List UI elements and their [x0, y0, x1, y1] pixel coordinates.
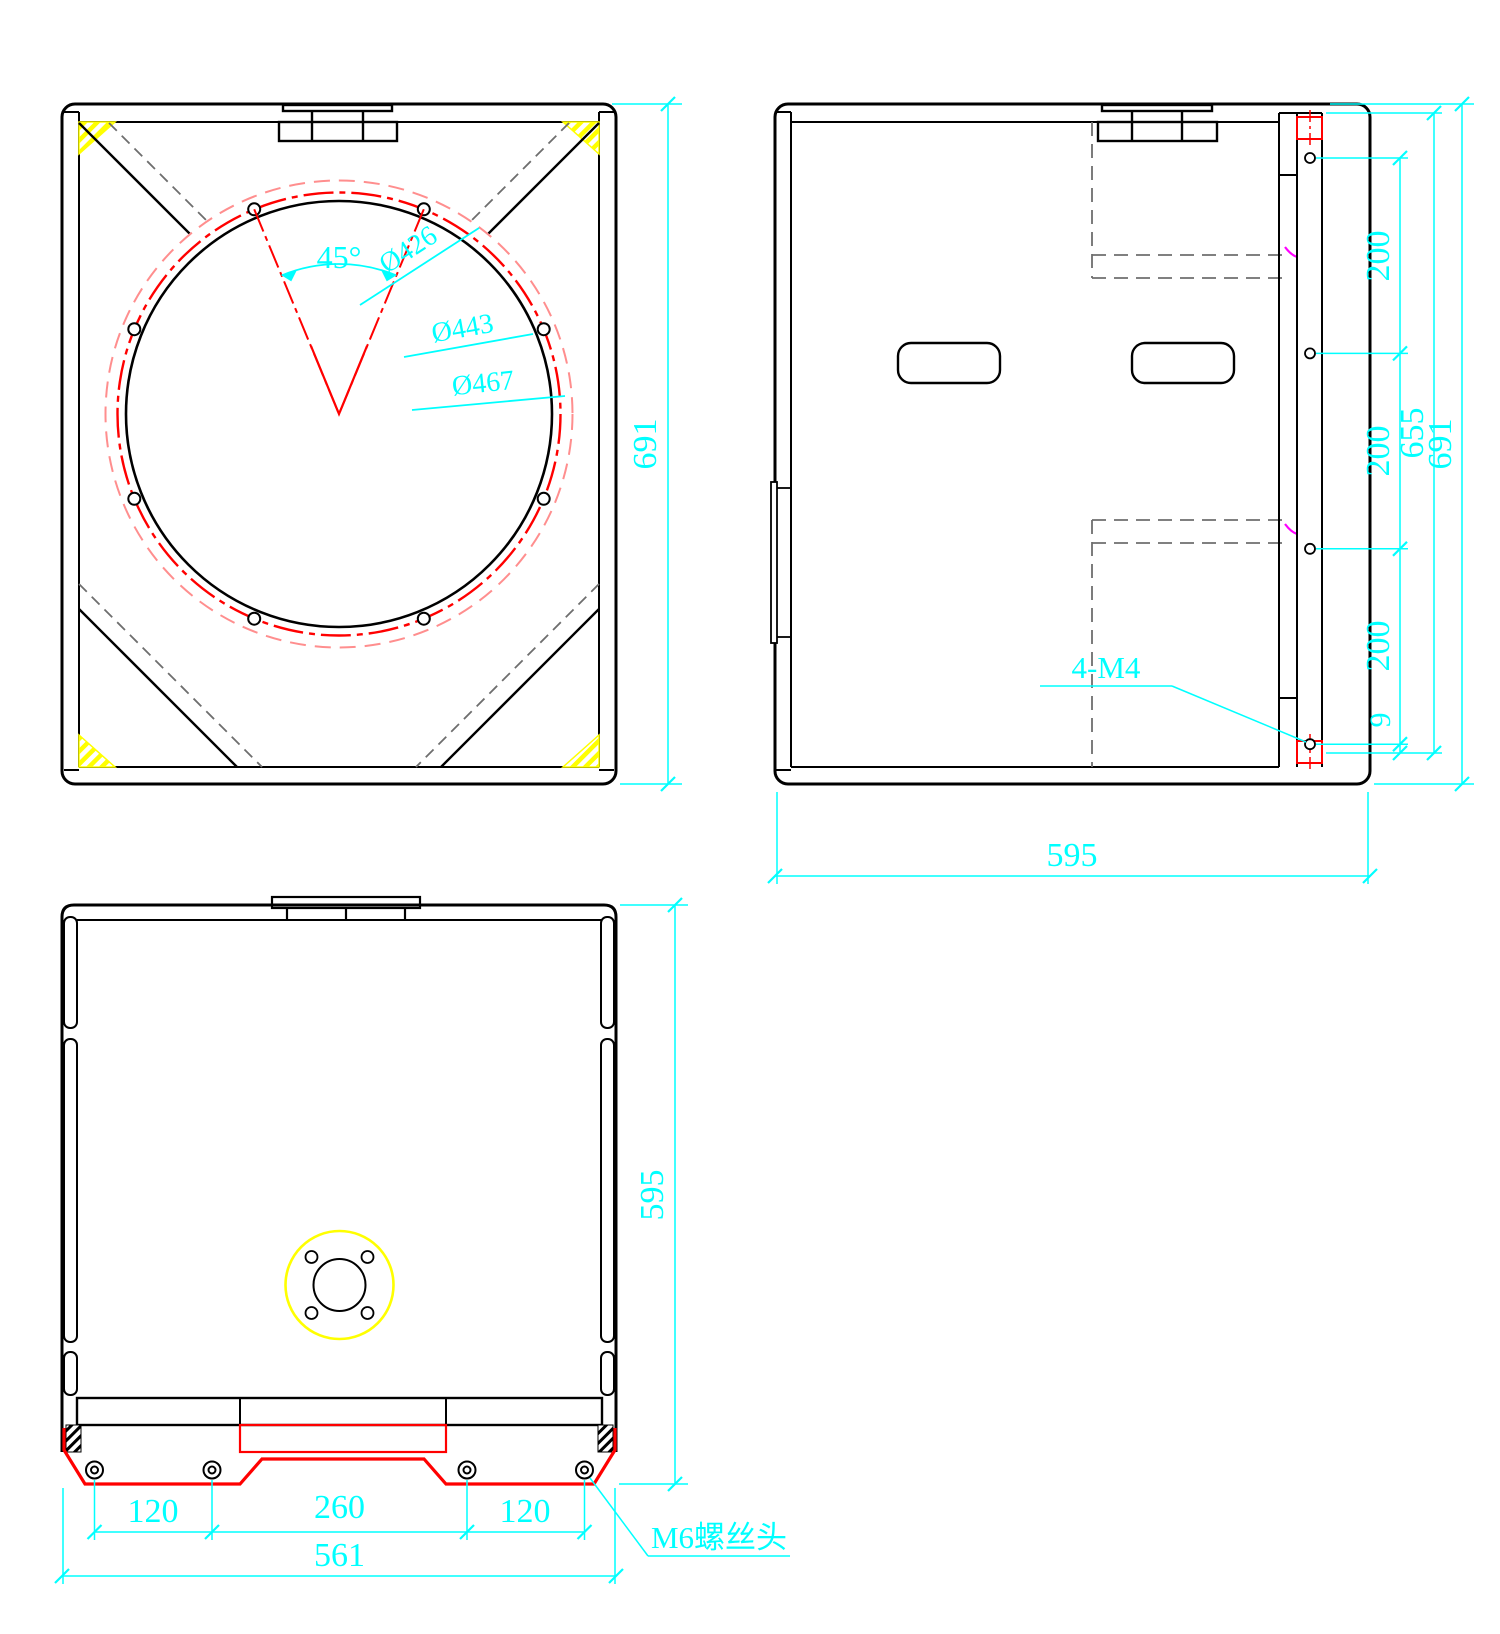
- bottom-view: 120 260 120 561 595 M6螺丝头: [55, 897, 790, 1584]
- corner-brace-bottom-left: [79, 735, 115, 767]
- bottom-width-text: 561: [314, 1537, 365, 1574]
- side-depth-dimension: 595: [768, 792, 1377, 884]
- edge-dim-9: 9: [1364, 713, 1397, 728]
- angle-label: 45°: [317, 239, 362, 275]
- pole-cup-outer: [286, 1231, 394, 1339]
- front-height-text: 691: [627, 419, 664, 470]
- pitch-dim-2: 200: [1360, 426, 1397, 477]
- side-handle-hole-left: [898, 343, 1000, 383]
- screw-pitch-3: 120: [500, 1493, 551, 1530]
- corner-brace-bottom-right: [563, 735, 599, 767]
- side-depth-text: 595: [1047, 837, 1098, 874]
- bottom-bar: [77, 1398, 602, 1452]
- side-rails: [64, 917, 614, 1395]
- pole-mount-cup: [286, 1231, 394, 1339]
- front-view: 45° Ø426 Ø443 Ø467 691: [62, 97, 682, 791]
- screw-pitch-1: 120: [128, 1493, 179, 1530]
- end-block-right: [598, 1425, 613, 1452]
- rail-hole-dimensions: 200 200 200 9 655 691: [1316, 97, 1474, 791]
- screw-pitch-2: 260: [314, 1489, 365, 1526]
- screw-head-text: M6螺丝头: [651, 1520, 787, 1555]
- rail-holes: [1305, 153, 1315, 749]
- skid-screws: [86, 1462, 593, 1479]
- side-top-handle: [1098, 105, 1217, 141]
- side-panel-lines: [775, 112, 1279, 770]
- bottom-depth-dimension: 595: [619, 898, 688, 1491]
- port-outline: [240, 1425, 446, 1452]
- side-handle-hole-right: [1132, 343, 1234, 383]
- rail-mount-zones: [1297, 110, 1322, 770]
- pole-cup-center-hole: [314, 1259, 366, 1311]
- screw-head-callout: M6螺丝头: [590, 1478, 790, 1556]
- side-height-text: 691: [1422, 419, 1459, 470]
- screw-pitch-dimensions: 120 260 120: [88, 1480, 592, 1540]
- side-view: 200 200 200 9 655 691 4-M4 595: [768, 97, 1474, 884]
- skid-profile: [64, 1428, 615, 1484]
- cad-drawing-sheet: 45° Ø426 Ø443 Ø467 691: [0, 0, 1500, 1634]
- thread-callout: 4-M4: [1040, 650, 1306, 742]
- diameter-label-467: Ø467: [451, 365, 516, 402]
- front-height-dimension: 691: [612, 97, 682, 791]
- end-block-left: [66, 1425, 81, 1452]
- bottom-depth-text: 595: [634, 1170, 671, 1221]
- magenta-junction-marks: [1285, 247, 1297, 534]
- bottom-handle-plate: [272, 897, 420, 920]
- thread-callout-text: 4-M4: [1072, 650, 1141, 685]
- back-panel-boards: [1279, 113, 1322, 767]
- pitch-dim-3: 200: [1360, 621, 1397, 672]
- front-top-handle: [279, 105, 397, 141]
- bottom-outline: [62, 905, 616, 1452]
- side-front-recess: [771, 482, 791, 643]
- pitch-dim-1: 200: [1360, 231, 1397, 282]
